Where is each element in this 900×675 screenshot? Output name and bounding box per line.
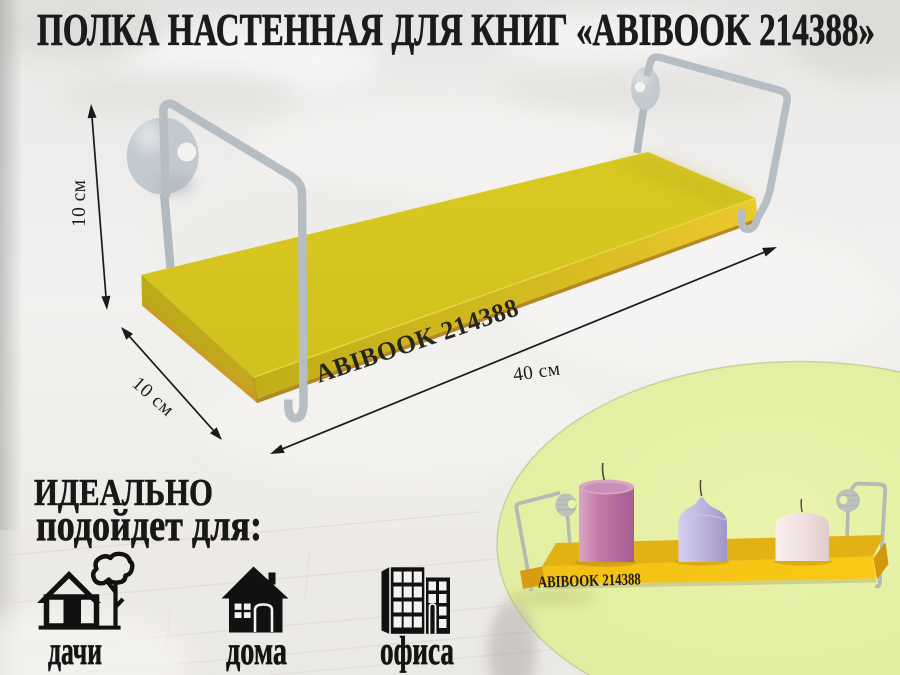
svg-text:ПОЛКА НАСТЕННАЯ ДЛЯ КНИГ «ABIB: ПОЛКА НАСТЕННАЯ ДЛЯ КНИГ «ABIBOOK 214388… <box>37 5 875 55</box>
svg-text:подойдет для:: подойдет для: <box>36 501 262 550</box>
svg-text:ABIBOOK 214388: ABIBOOK 214388 <box>538 569 642 591</box>
svg-text:10 см: 10 см <box>69 180 90 227</box>
svg-text:дачи: дачи <box>48 628 102 673</box>
svg-text:офиса: офиса <box>380 628 454 673</box>
svg-text:дома: дома <box>226 628 287 673</box>
